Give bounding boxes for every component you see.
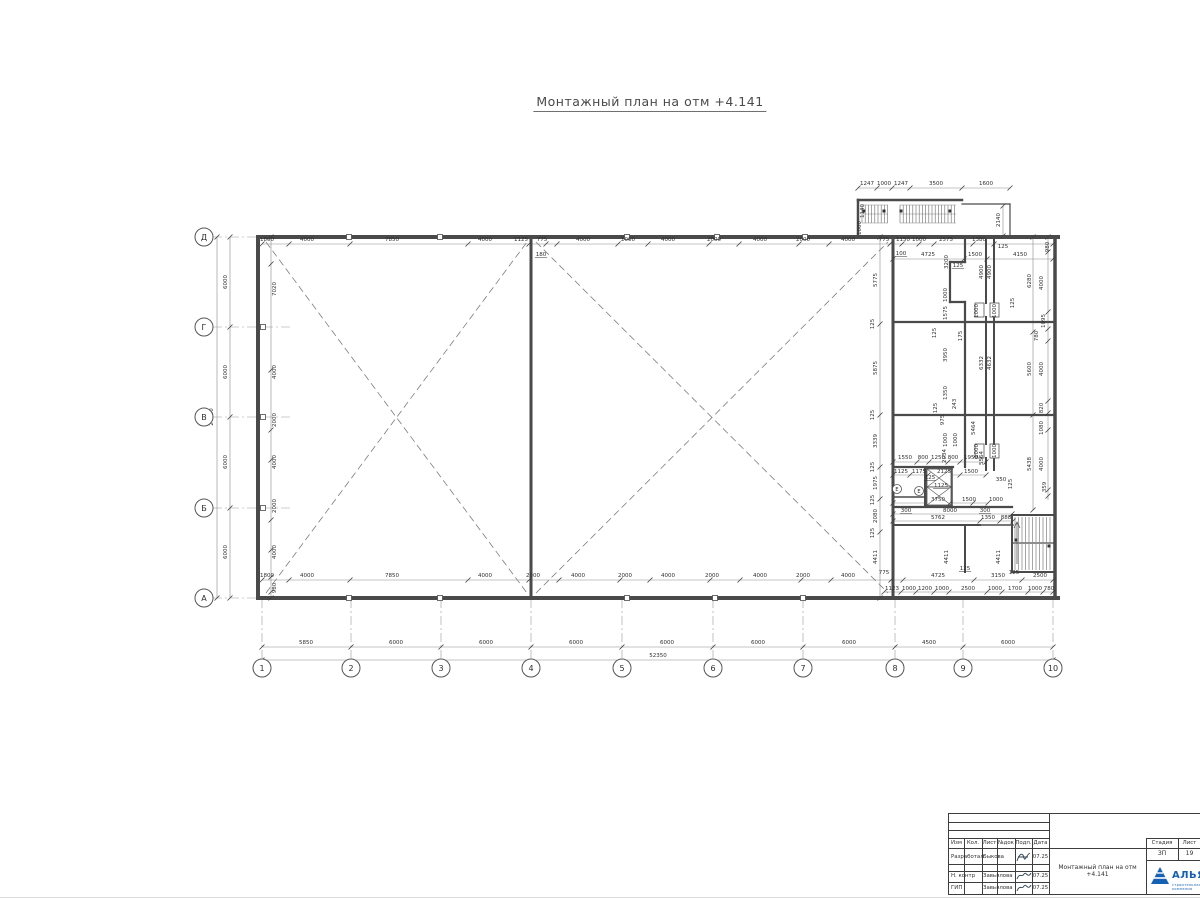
svg-text:6332: 6332: [979, 356, 985, 370]
svg-text:6000: 6000: [569, 640, 583, 646]
svg-text:1000: 1000: [988, 586, 1002, 592]
svg-text:4000: 4000: [478, 237, 492, 243]
svg-text:1950: 1950: [964, 455, 978, 461]
svg-text:5850: 5850: [299, 640, 313, 646]
svg-text:125: 125: [870, 461, 876, 472]
svg-text:1: 1: [259, 664, 264, 673]
svg-text:6: 6: [710, 664, 715, 673]
svg-text:125: 125: [932, 327, 938, 338]
svg-text:1000: 1000: [935, 586, 949, 592]
svg-text:100: 100: [896, 251, 907, 257]
svg-text:4: 4: [528, 664, 533, 673]
svg-text:6000: 6000: [223, 545, 229, 559]
signature-icon: [1015, 850, 1032, 863]
svg-text:2500: 2500: [1033, 573, 1047, 579]
svg-text:243: 243: [952, 398, 958, 409]
svg-text:6000: 6000: [389, 640, 403, 646]
svg-text:125: 125: [1008, 478, 1014, 489]
svg-text:800: 800: [948, 455, 959, 461]
svg-text:3150: 3150: [991, 573, 1005, 579]
svg-text:Г: Г: [202, 323, 207, 332]
svg-text:300: 300: [980, 508, 991, 514]
svg-text:4000: 4000: [571, 573, 585, 579]
walls: [258, 200, 1058, 598]
svg-text:1000: 1000: [912, 237, 926, 243]
svg-text:4411: 4411: [944, 550, 950, 564]
svg-text:2000: 2000: [621, 237, 635, 243]
svg-text:3500: 3500: [929, 181, 943, 187]
drawing-sheet: Монтажный план на отм +4.141 18004000785…: [0, 0, 1200, 900]
svg-text:975: 975: [940, 414, 946, 425]
svg-text:1000: 1000: [992, 304, 998, 318]
svg-text:1125: 1125: [894, 469, 908, 475]
tb-date-gip: 07.25: [1032, 885, 1049, 891]
svg-text:4000: 4000: [661, 237, 675, 243]
svg-text:4000: 4000: [1039, 362, 1045, 376]
logo-triangle-icon: [1149, 865, 1171, 887]
svg-text:Б: Б: [201, 504, 207, 513]
sheet-bottom-edge: [0, 897, 1200, 898]
svg-text:125: 125: [1009, 570, 1020, 576]
svg-text:1247: 1247: [894, 181, 908, 187]
svg-text:800: 800: [918, 455, 929, 461]
svg-text:180: 180: [536, 252, 547, 258]
svg-text:5464: 5464: [971, 421, 977, 435]
svg-text:4000: 4000: [272, 455, 278, 469]
svg-text:8000: 8000: [943, 508, 957, 514]
svg-text:3: 3: [438, 664, 443, 673]
svg-text:4000: 4000: [272, 545, 278, 559]
axis-bubbles: 12345678910ДГВБА: [195, 228, 1062, 677]
svg-text:Е: Е: [895, 487, 898, 493]
svg-text:3200: 3200: [944, 255, 950, 269]
svg-text:1000: 1000: [902, 586, 916, 592]
svg-text:1000: 1000: [857, 221, 863, 235]
svg-text:888: 888: [1001, 515, 1012, 521]
svg-text:4411: 4411: [873, 550, 879, 564]
svg-text:1250: 1250: [931, 455, 945, 461]
svg-text:3950: 3950: [943, 348, 949, 362]
svg-text:4150: 4150: [1013, 252, 1027, 258]
svg-text:2000: 2000: [526, 573, 540, 579]
svg-text:6000: 6000: [223, 365, 229, 379]
svg-text:3339: 3339: [873, 434, 879, 448]
svg-text:5875: 5875: [873, 361, 879, 375]
svg-text:7850: 7850: [385, 573, 399, 579]
svg-text:125: 125: [953, 263, 964, 269]
tb-stage-value: ЗП: [1146, 850, 1178, 857]
tb-col-kol: Кол.: [964, 840, 982, 846]
svg-text:6000: 6000: [479, 640, 493, 646]
svg-text:3750: 3750: [931, 497, 945, 503]
svg-text:2000: 2000: [796, 573, 810, 579]
svg-text:2000: 2000: [618, 573, 632, 579]
svg-text:2000: 2000: [796, 237, 810, 243]
svg-text:980: 980: [272, 582, 278, 593]
svg-text:4000: 4000: [1039, 457, 1045, 471]
svg-text:359: 359: [1042, 481, 1048, 492]
svg-text:8: 8: [892, 664, 897, 673]
svg-text:175: 175: [958, 330, 964, 341]
svg-text:1000: 1000: [943, 288, 949, 302]
svg-text:4900: 4900: [979, 265, 985, 279]
svg-text:5775: 5775: [873, 273, 879, 287]
svg-text:5600: 5600: [1027, 362, 1033, 376]
svg-text:2575: 2575: [939, 237, 953, 243]
svg-text:1000: 1000: [943, 433, 949, 447]
svg-text:125: 125: [870, 318, 876, 329]
tb-date-developer: 07.25: [1032, 854, 1049, 860]
svg-text:6000: 6000: [223, 455, 229, 469]
svg-text:1000: 1000: [877, 181, 891, 187]
svg-text:1095: 1095: [1041, 314, 1047, 328]
svg-text:1550: 1550: [898, 455, 912, 461]
svg-text:780: 780: [1034, 330, 1040, 341]
svg-text:125: 125: [1010, 297, 1016, 308]
company-name: АЛЬЯНС: [1172, 870, 1200, 881]
svg-text:Д: Д: [201, 233, 207, 242]
tb-date-ncontr: 07.25: [1032, 873, 1049, 879]
tb-doc-title: Монтажный план на отм +4.141: [1051, 850, 1144, 892]
svg-text:В: В: [201, 413, 207, 422]
svg-text:125: 125: [925, 475, 936, 481]
svg-text:4411: 4411: [996, 550, 1002, 564]
svg-text:125: 125: [933, 402, 939, 413]
bracing-cross-lines: [266, 242, 888, 593]
column-squares: [261, 210, 1051, 601]
svg-text:1150: 1150: [896, 237, 910, 243]
svg-text:1000: 1000: [1028, 586, 1042, 592]
svg-text:125: 125: [998, 244, 1009, 250]
svg-text:125: 125: [960, 566, 971, 572]
svg-text:4000: 4000: [841, 573, 855, 579]
svg-text:6280: 6280: [1027, 274, 1033, 288]
tb-sheet-label: Лист: [1178, 840, 1200, 846]
svg-text:2500: 2500: [961, 586, 975, 592]
svg-text:7020: 7020: [272, 282, 278, 296]
svg-text:4000: 4000: [576, 237, 590, 243]
svg-text:1575: 1575: [943, 306, 949, 320]
title-block: Изм Кол. Лист №док Подп. Дата Разработал…: [948, 813, 1200, 895]
svg-text:4000: 4000: [272, 365, 278, 379]
svg-text:1000: 1000: [992, 444, 998, 458]
svg-text:4725: 4725: [931, 573, 945, 579]
company-logo: АЛЬЯНС строительная компания: [1148, 862, 1200, 893]
svg-text:1800: 1800: [260, 237, 274, 243]
svg-text:5438: 5438: [1027, 457, 1033, 471]
svg-text:1500: 1500: [964, 469, 978, 475]
svg-text:125: 125: [870, 527, 876, 538]
svg-text:6000: 6000: [223, 275, 229, 289]
dimension-labels: 1800400078504000112577540002000400020004…: [209, 181, 1055, 659]
svg-text:820: 820: [1039, 402, 1045, 413]
tb-col-list: Лист: [982, 840, 997, 846]
svg-text:4000: 4000: [300, 573, 314, 579]
svg-text:1125: 1125: [514, 237, 528, 243]
svg-text:2000: 2000: [272, 499, 278, 513]
svg-text:4000: 4000: [841, 237, 855, 243]
svg-text:2080: 2080: [873, 509, 879, 523]
svg-text:4000: 4000: [300, 237, 314, 243]
svg-text:1500: 1500: [962, 497, 976, 503]
tb-col-ndok: №док: [997, 840, 1015, 846]
tb-col-izm: Изм: [949, 840, 964, 846]
svg-text:4725: 4725: [921, 252, 935, 258]
tb-name-gip: Завьялова: [983, 885, 1017, 891]
svg-text:1700: 1700: [1008, 586, 1022, 592]
svg-text:1500: 1500: [968, 252, 982, 258]
tb-col-podp: Подп.: [1015, 840, 1032, 846]
svg-text:980: 980: [1045, 241, 1051, 252]
svg-text:4000: 4000: [753, 573, 767, 579]
svg-text:2000: 2000: [707, 237, 721, 243]
svg-text:4900: 4900: [987, 265, 993, 279]
svg-text:4632: 4632: [987, 356, 993, 370]
svg-text:4000: 4000: [753, 237, 767, 243]
svg-text:6000: 6000: [842, 640, 856, 646]
svg-text:1200: 1200: [918, 586, 932, 592]
svg-text:1080: 1080: [1039, 421, 1045, 435]
svg-text:1247: 1247: [860, 181, 874, 187]
svg-text:1600: 1600: [979, 181, 993, 187]
svg-text:125: 125: [870, 409, 876, 420]
axis-centerlines: [213, 237, 1053, 658]
svg-text:775: 775: [879, 237, 890, 243]
svg-text:1125: 1125: [934, 483, 948, 489]
svg-text:1350: 1350: [943, 386, 949, 400]
svg-text:Е: Е: [917, 489, 920, 495]
svg-text:1800: 1800: [260, 573, 274, 579]
tb-stage-label: Стадия: [1146, 840, 1178, 846]
svg-text:1140: 1140: [860, 204, 866, 218]
floor-plan-canvas: 1800400078504000112577540002000400020004…: [0, 0, 1200, 900]
tb-name-ncontr: Завьялова: [983, 873, 1017, 879]
svg-text:5: 5: [619, 664, 624, 673]
equipment-tags: ЕЕ: [893, 485, 924, 496]
svg-text:6000: 6000: [660, 640, 674, 646]
svg-text:9: 9: [960, 664, 965, 673]
tb-col-data: Дата: [1032, 840, 1049, 846]
signature-icon: [1016, 871, 1032, 881]
tb-name-developer: Быкова: [983, 854, 1017, 860]
svg-text:6000: 6000: [751, 640, 765, 646]
svg-text:2125: 2125: [937, 469, 951, 475]
tb-sheet-value: 19: [1178, 850, 1200, 857]
svg-text:775: 775: [537, 237, 548, 243]
svg-text:1380: 1380: [972, 237, 986, 243]
svg-text:300: 300: [901, 508, 912, 514]
svg-text:780: 780: [1044, 586, 1055, 592]
svg-text:4500: 4500: [922, 640, 936, 646]
svg-text:6000: 6000: [1001, 640, 1015, 646]
svg-text:2140: 2140: [996, 213, 1002, 227]
svg-text:1000: 1000: [974, 304, 980, 318]
svg-text:4000: 4000: [478, 573, 492, 579]
svg-text:4000: 4000: [661, 573, 675, 579]
svg-text:1000: 1000: [953, 433, 959, 447]
svg-text:350: 350: [996, 477, 1007, 483]
svg-text:2000: 2000: [272, 413, 278, 427]
svg-text:1123: 1123: [885, 586, 899, 592]
svg-text:5762: 5762: [931, 515, 945, 521]
svg-text:10: 10: [1048, 664, 1058, 673]
svg-text:125: 125: [870, 494, 876, 505]
svg-text:2000: 2000: [705, 573, 719, 579]
svg-text:1350: 1350: [981, 515, 995, 521]
svg-text:775: 775: [879, 570, 890, 576]
svg-text:1000: 1000: [989, 497, 1003, 503]
svg-text:2: 2: [348, 664, 353, 673]
svg-text:7: 7: [800, 664, 805, 673]
svg-text:7850: 7850: [385, 237, 399, 243]
signature-icon: [1016, 883, 1032, 893]
svg-text:52350: 52350: [649, 653, 667, 659]
svg-text:А: А: [201, 594, 207, 603]
svg-text:4000: 4000: [1039, 276, 1045, 290]
company-subtitle: строительная компания: [1172, 883, 1200, 891]
svg-text:1975: 1975: [873, 476, 879, 490]
